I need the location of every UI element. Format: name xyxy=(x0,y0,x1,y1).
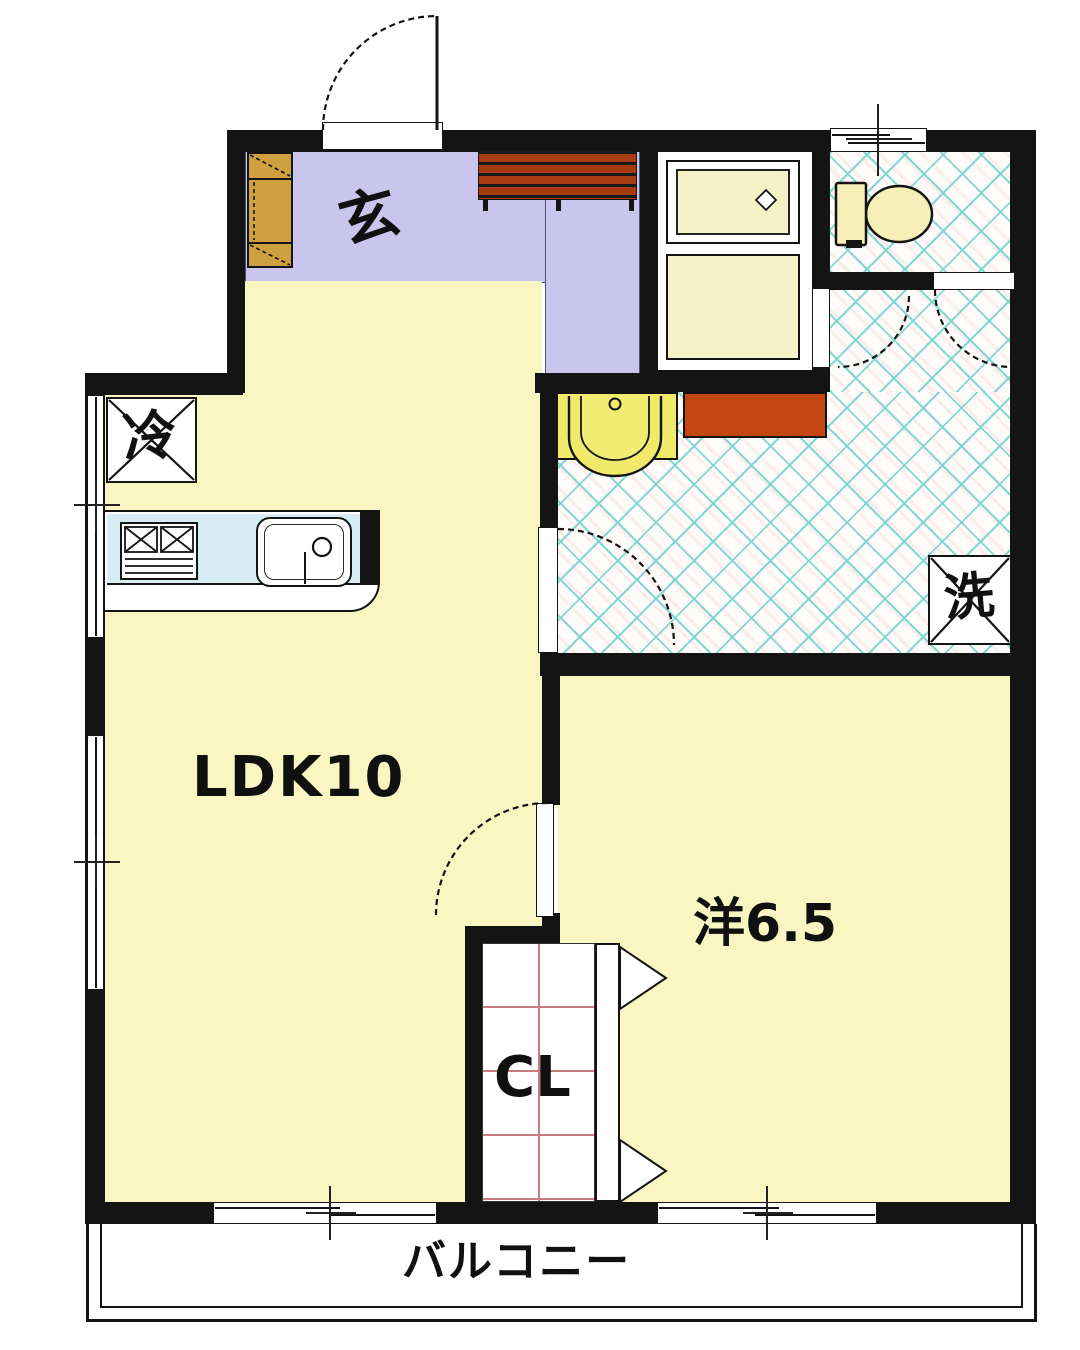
stove xyxy=(120,522,198,580)
floor-plan: 玄 冷 洗 LDK10 洋6.5 CL バルコニー xyxy=(0,0,1080,1350)
washbasin-counter xyxy=(556,392,678,460)
toilet-room-floor xyxy=(830,152,1010,272)
bathroom-floor-mat xyxy=(666,254,800,360)
closet-label: CL xyxy=(494,1050,571,1106)
window-left-upper-mullion xyxy=(95,397,97,636)
entrance-door-sill xyxy=(322,122,443,150)
window-balcony-western-pane2 xyxy=(755,1214,875,1216)
window-toilet xyxy=(830,128,927,152)
bathtub xyxy=(676,169,790,235)
kitchen-sink-inner xyxy=(264,524,344,580)
window-toilet-pane1 xyxy=(832,134,890,136)
ldk-room-upper xyxy=(245,281,542,395)
window-balcony-ldk-pane2 xyxy=(330,1214,435,1216)
wall-entrance-bath xyxy=(640,150,658,393)
wall-washroom-bottom xyxy=(540,653,1013,676)
window-balcony-ldk-pane1 xyxy=(215,1207,340,1209)
washroom-door-leaf xyxy=(538,527,558,653)
window-left-lower-mullion xyxy=(95,737,97,988)
shoe-rack xyxy=(478,150,637,200)
wall-bath-bottom xyxy=(640,370,830,392)
wall-ldk-western-upper xyxy=(542,653,560,805)
wall-left-upper xyxy=(227,130,245,393)
laundry-label: 洗 xyxy=(942,570,996,624)
ldk-label: LDK10 xyxy=(192,750,406,806)
shoe-cabinet xyxy=(247,152,293,268)
wall-toilet-bottom xyxy=(812,272,933,290)
wall-bath-toilet xyxy=(812,130,830,288)
window-toilet-pane2 xyxy=(848,142,925,144)
wall-bath-stub xyxy=(812,366,830,392)
bathroom-door-leaf xyxy=(812,288,830,368)
closet-door-strip xyxy=(595,943,620,1202)
window-balcony-ldk xyxy=(213,1202,437,1224)
wall-closet-left xyxy=(465,926,482,1202)
toilet-door-leaf xyxy=(933,272,1015,290)
shoe-cabinet-shelf2 xyxy=(249,242,291,244)
window-balcony-western xyxy=(657,1202,877,1224)
window-balcony-western-pane1 xyxy=(659,1207,779,1209)
wall-right xyxy=(1010,130,1036,1224)
refrigerator-label: 冷 xyxy=(120,407,179,466)
shoe-rack-leg2 xyxy=(556,200,561,211)
washroom-red-counter xyxy=(683,392,827,438)
shoe-rack-leg3 xyxy=(629,200,634,211)
kitchen-counter-cap xyxy=(360,512,380,585)
shoe-cabinet-shelf1 xyxy=(249,178,291,180)
entrance-door-swing-arc xyxy=(323,16,437,130)
balcony-label: バルコニー xyxy=(402,1240,631,1284)
shoe-rack-leg1 xyxy=(483,200,488,211)
western-room-door-leaf xyxy=(536,803,554,917)
western-room-label: 洋6.5 xyxy=(693,898,837,950)
washroom-floor-upper xyxy=(830,288,1012,392)
wall-step xyxy=(85,373,243,395)
